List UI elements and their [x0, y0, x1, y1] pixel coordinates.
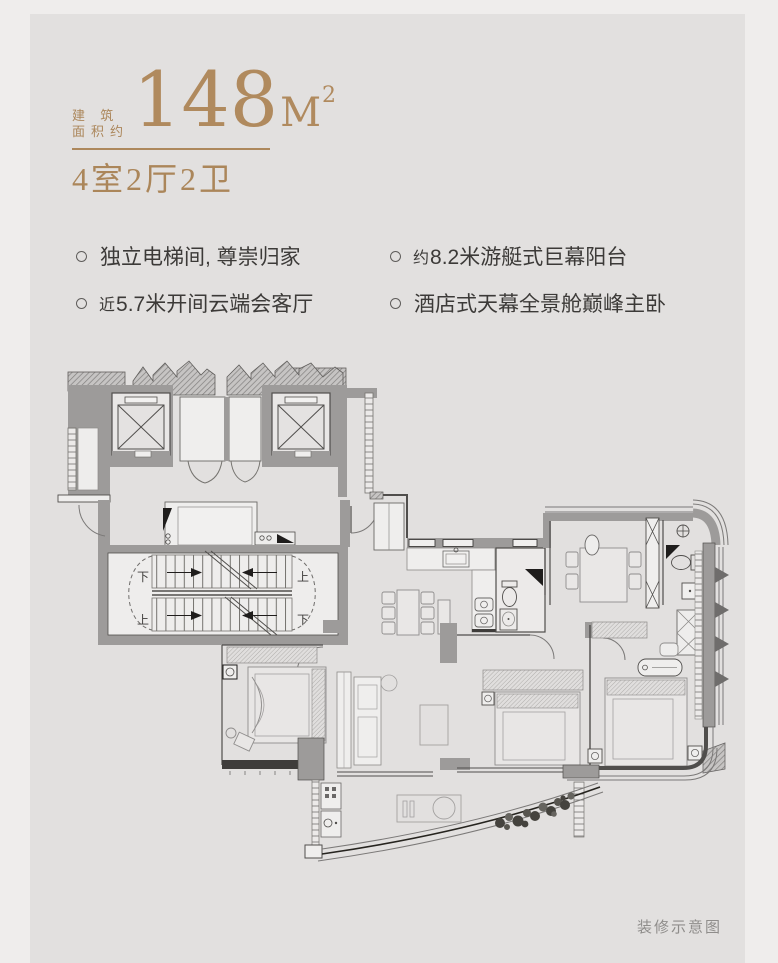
study-window-lines — [545, 507, 693, 512]
dining-chair — [382, 607, 395, 619]
feature-item: 近 5.7米开间云端会客厅 — [76, 288, 313, 318]
stair-label: 上 — [137, 613, 149, 627]
nightstand — [482, 692, 494, 705]
window-ticks — [230, 771, 290, 775]
nightstand — [588, 749, 602, 763]
wall — [340, 500, 350, 547]
elevator-shaft-right — [272, 393, 330, 457]
feature-text: 酒店式天幕全景舱巅峰主卧 — [414, 288, 666, 318]
bullet-circle-icon — [390, 298, 401, 309]
counter-edge — [472, 629, 496, 632]
wall — [98, 545, 108, 645]
bathroom-middle — [496, 548, 545, 632]
dining-chair — [421, 592, 434, 604]
wall — [545, 513, 693, 521]
page-background: 建 筑 面积约 148 M 2 4室2厅2卫 独立电梯间, 尊崇归家 近 — [0, 0, 778, 963]
drain-dot — [689, 590, 691, 592]
floor-plan: 下 上 上 下 — [55, 355, 735, 900]
area-prefix-label: 建 筑 面积约 — [72, 108, 129, 140]
bed-pillows — [312, 669, 325, 741]
wall-dark — [222, 760, 300, 769]
decor-oval — [585, 535, 599, 555]
bed-pillows — [497, 694, 578, 708]
bullet-circle-icon — [390, 251, 401, 262]
washer — [223, 665, 237, 679]
floorplan-card: 建 筑 面积约 148 M 2 4室2厅2卫 独立电梯间, 尊崇归家 近 — [30, 14, 745, 963]
area-prefix-line1: 建 筑 — [72, 108, 129, 124]
drain-dot — [508, 618, 510, 620]
lobby-room — [229, 397, 261, 461]
area-line: 建 筑 面积约 148 M 2 — [72, 62, 336, 146]
wall-pillar — [563, 765, 599, 778]
bay-window-right — [365, 393, 373, 493]
feature-item: 独立电梯间, 尊崇归家 — [76, 241, 313, 271]
layout-text: 4室2厅2卫 — [72, 154, 234, 200]
elevator-shaft-left — [112, 393, 170, 457]
area-number: 148 — [133, 62, 278, 138]
area-unit: M — [280, 90, 321, 136]
area-prefix-line2: 面积约 — [72, 124, 129, 140]
feature-item: 约 8.2米游艇式巨幕阳台 — [390, 241, 666, 271]
bedroom-middle — [440, 670, 583, 772]
feature-prefix: 约 — [413, 244, 429, 268]
header-divider — [72, 148, 270, 150]
dining-chair — [382, 592, 395, 604]
toilet-icon — [672, 556, 691, 570]
window-strip — [695, 551, 702, 719]
decor-circle — [381, 675, 397, 691]
door-arc — [603, 638, 625, 660]
door-wedge — [666, 545, 680, 559]
wall — [224, 397, 229, 461]
kitchen-windows — [409, 540, 537, 547]
wall — [98, 635, 348, 645]
coffee-table — [420, 705, 448, 745]
balcony-side-window — [574, 782, 584, 837]
dining-area — [382, 590, 450, 635]
table-circle — [433, 797, 455, 819]
bathroom-master — [663, 520, 700, 655]
stair-block: 下 上 上 下 — [98, 502, 348, 645]
feature-text: 独立电梯间, 尊崇归家 — [100, 241, 301, 271]
study-table — [580, 548, 627, 602]
dining-chair — [421, 607, 434, 619]
feature-column-right: 约 8.2米游艇式巨幕阳台 酒店式天幕全景舱巅峰主卧 — [390, 241, 666, 318]
bay-window-left — [68, 428, 76, 490]
study-room — [543, 507, 693, 608]
bathroom-room — [496, 548, 545, 632]
table-bar — [403, 801, 407, 817]
balcony-rail — [322, 783, 598, 849]
stair-upper-room-inner — [178, 507, 252, 545]
dining-chair — [382, 622, 395, 634]
wall-pillar — [298, 738, 324, 780]
feature-list: 独立电梯间, 尊崇归家 近 5.7米开间云端会客厅 约 8.2米游艇式巨幕阳台 — [76, 241, 736, 318]
stair-label: 下 — [297, 613, 309, 627]
stair-flight-lower — [152, 598, 292, 631]
feature-column-left: 独立电梯间, 尊崇归家 近 5.7米开间云端会客厅 — [76, 241, 313, 318]
table-bar — [410, 801, 414, 817]
study-chair — [566, 574, 578, 589]
header: 建 筑 面积约 148 M 2 — [72, 62, 336, 146]
corner-wall-arc — [693, 513, 716, 545]
wardrobe-strip — [592, 622, 647, 638]
balcony-post — [305, 845, 322, 858]
study-chair — [629, 552, 641, 567]
fixture-dot — [335, 822, 337, 824]
bullet-circle-icon — [76, 251, 87, 262]
balcony-counter — [321, 783, 341, 809]
counter — [255, 532, 295, 545]
wall — [323, 620, 339, 633]
wall — [98, 500, 110, 547]
feature-text: 8.2米游艇式巨幕阳台 — [430, 241, 627, 271]
stair-label: 上 — [297, 570, 309, 584]
bed-pillows — [607, 680, 685, 695]
lobby-room — [180, 397, 225, 461]
bay-panel — [78, 428, 98, 490]
stool-icon — [226, 728, 236, 738]
wall — [338, 545, 348, 645]
right-wall — [703, 543, 715, 727]
feature-text: 5.7米开间云端会客厅 — [116, 288, 313, 318]
ac-louver-triangles — [715, 567, 729, 687]
living-room — [337, 672, 448, 776]
balcony-side-window — [312, 780, 319, 848]
kitchen-sink — [443, 551, 469, 567]
plan-caption: 装修示意图 — [637, 916, 722, 937]
door-arc — [530, 635, 554, 659]
area-exponent: 2 — [322, 83, 336, 108]
ottoman — [660, 643, 678, 656]
dining-chair — [421, 622, 434, 634]
study-chair — [566, 552, 578, 567]
wall — [440, 623, 457, 663]
study-chair — [629, 574, 641, 589]
dining-table — [397, 590, 419, 635]
wall-hatch — [370, 492, 383, 499]
stair-label: 下 — [137, 570, 149, 584]
feature-item: 酒店式天幕全景舱巅峰主卧 — [390, 288, 666, 318]
wardrobe-strip — [227, 647, 317, 663]
feature-prefix: 近 — [99, 291, 115, 315]
wall — [338, 385, 347, 497]
bullet-circle-icon — [76, 298, 87, 309]
wall — [98, 545, 348, 553]
nightstand — [688, 746, 702, 760]
wardrobe-strip — [483, 670, 583, 690]
